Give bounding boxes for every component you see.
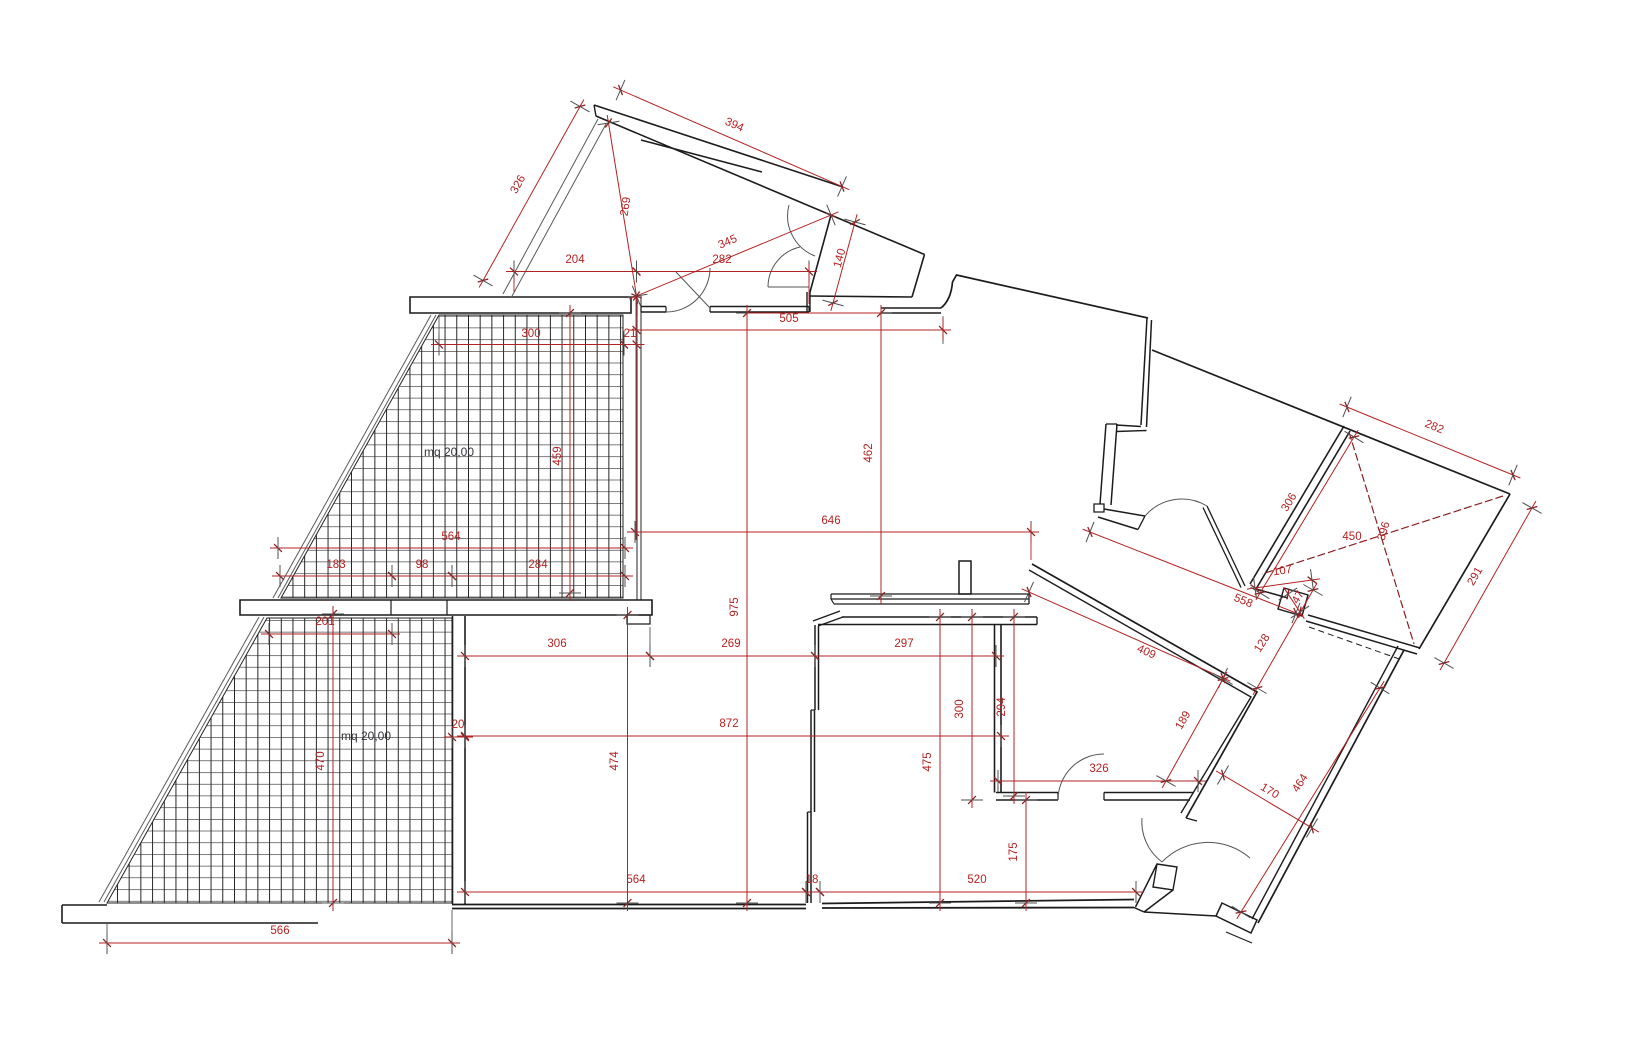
svg-text:450: 450	[1342, 531, 1361, 543]
svg-text:98: 98	[416, 559, 429, 571]
svg-text:462: 462	[863, 443, 875, 462]
svg-text:300: 300	[521, 328, 540, 340]
svg-text:474: 474	[609, 751, 621, 771]
svg-text:204: 204	[565, 254, 585, 266]
svg-text:297: 297	[894, 638, 913, 650]
svg-text:294: 294	[996, 697, 1008, 717]
svg-text:459: 459	[552, 446, 564, 465]
svg-text:505: 505	[779, 313, 798, 325]
svg-text:mq 20,00: mq 20,00	[424, 445, 474, 459]
svg-text:872: 872	[719, 718, 738, 730]
svg-text:175: 175	[1008, 842, 1020, 861]
svg-text:975: 975	[729, 597, 741, 616]
svg-text:269: 269	[721, 638, 740, 650]
svg-text:306: 306	[547, 638, 566, 650]
svg-text:300: 300	[954, 699, 966, 718]
svg-text:326: 326	[1089, 763, 1108, 775]
svg-text:564: 564	[626, 874, 646, 886]
svg-text:21: 21	[624, 328, 637, 340]
svg-text:18: 18	[806, 874, 819, 886]
svg-text:566: 566	[270, 925, 289, 937]
svg-text:470: 470	[315, 751, 327, 770]
svg-text:520: 520	[967, 874, 986, 886]
svg-text:646: 646	[821, 515, 840, 527]
svg-text:mq 20,00: mq 20,00	[341, 729, 391, 743]
svg-text:564: 564	[441, 531, 461, 543]
svg-text:475: 475	[922, 752, 934, 771]
svg-text:201: 201	[315, 616, 334, 628]
svg-text:284: 284	[528, 559, 548, 571]
svg-text:20: 20	[452, 719, 465, 731]
svg-text:183: 183	[326, 559, 345, 571]
